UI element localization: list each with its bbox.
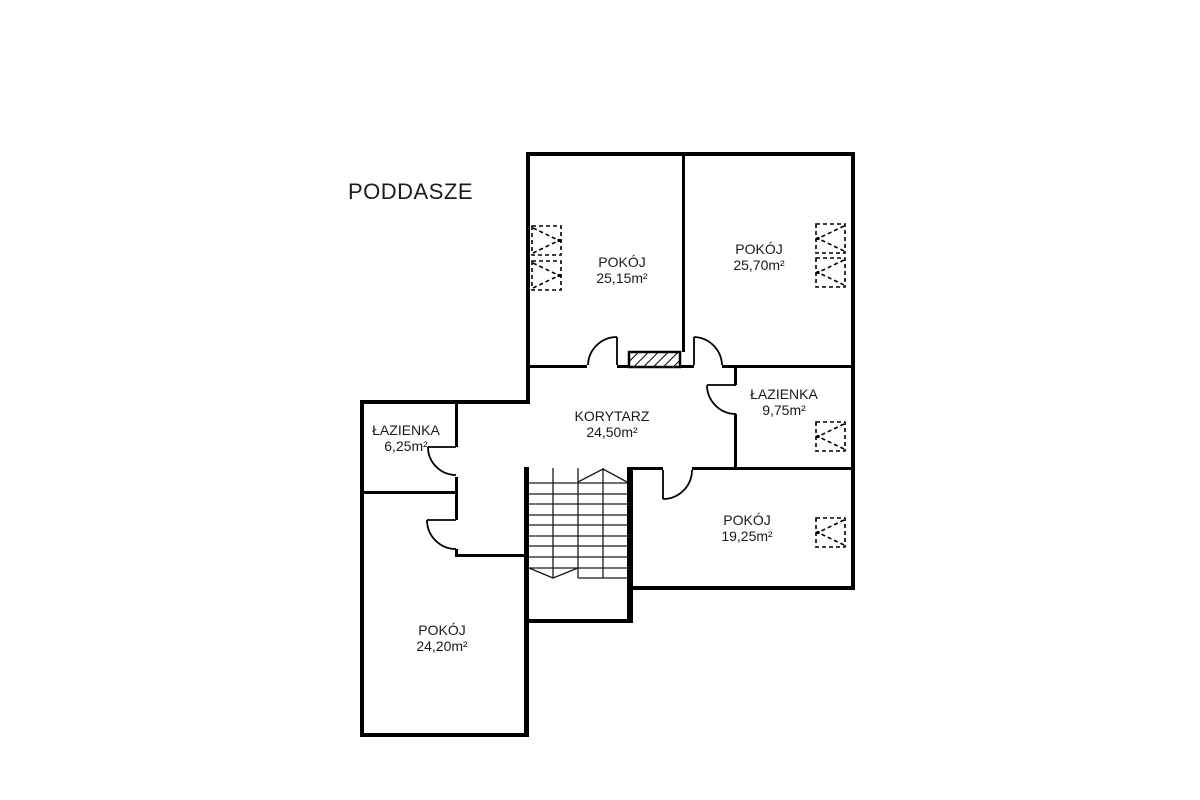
wall-north <box>526 152 855 156</box>
room-area: 24,50m² <box>575 424 650 440</box>
room-name: POKÓJ <box>721 512 772 528</box>
room-label-lazienka-mala: ŁAZIENKA 6,25m² <box>372 422 440 454</box>
wall-east <box>851 152 855 590</box>
wall-west-upper <box>526 152 530 404</box>
wall-between-top-rooms <box>682 156 685 352</box>
skylight-icon <box>816 258 845 287</box>
skylight-icon <box>816 422 845 451</box>
room-area: 9,75m² <box>750 402 818 418</box>
chimney-shaft <box>629 352 680 367</box>
room-name: ŁAZIENKA <box>750 386 818 402</box>
floor-plan-drawing <box>0 0 1200 800</box>
skylight-icon <box>532 226 561 255</box>
door-pokoj-3 <box>663 470 692 499</box>
room-label-lazienka-duza: ŁAZIENKA 9,75m² <box>750 386 818 418</box>
room-label-pokoj-2: POKÓJ 25,70m² <box>733 241 784 273</box>
room-area: 19,25m² <box>721 528 772 544</box>
door-lazienka-duza <box>707 385 736 414</box>
room-name: POKÓJ <box>733 241 784 257</box>
plan-title: PODDASZE <box>348 179 473 205</box>
room-area: 6,25m² <box>372 438 440 454</box>
room-name: ŁAZIENKA <box>372 422 440 438</box>
room-label-pokoj-1: POKÓJ 25,15m² <box>596 254 647 286</box>
staircase <box>529 468 627 578</box>
room-label-pokoj-3: POKÓJ 19,25m² <box>721 512 772 544</box>
room-area: 24,20m² <box>416 638 467 654</box>
skylight-icon <box>532 261 561 290</box>
wall-west-lower <box>360 400 364 737</box>
doors <box>427 337 736 549</box>
door-pokoj-1 <box>588 337 617 365</box>
wall-south-west-room <box>360 733 527 737</box>
wall-north-of-bathroom <box>360 400 530 404</box>
interior-walls <box>364 156 851 557</box>
wall-south-east-room <box>630 586 855 590</box>
wall-stairwell-east <box>627 467 633 623</box>
skylight-icon <box>816 518 845 547</box>
room-name: KORYTARZ <box>575 408 650 424</box>
floor-plan-page: PODDASZE POKÓJ 25,15m² POKÓJ 25,70m² ŁAZ… <box>0 0 1200 800</box>
room-area: 25,70m² <box>733 257 784 273</box>
room-label-korytarz: KORYTARZ 24,50m² <box>575 408 650 440</box>
room-name: POKÓJ <box>416 622 467 638</box>
room-area: 25,15m² <box>596 270 647 286</box>
wall-west-of-stairs <box>524 467 529 737</box>
door-pokoj-4 <box>427 520 456 549</box>
wall-stairwell-south <box>524 619 633 623</box>
door-pokoj-2 <box>694 337 722 365</box>
room-name: POKÓJ <box>596 254 647 270</box>
room-label-pokoj-4: POKÓJ 24,20m² <box>416 622 467 654</box>
skylight-icon <box>816 224 845 253</box>
